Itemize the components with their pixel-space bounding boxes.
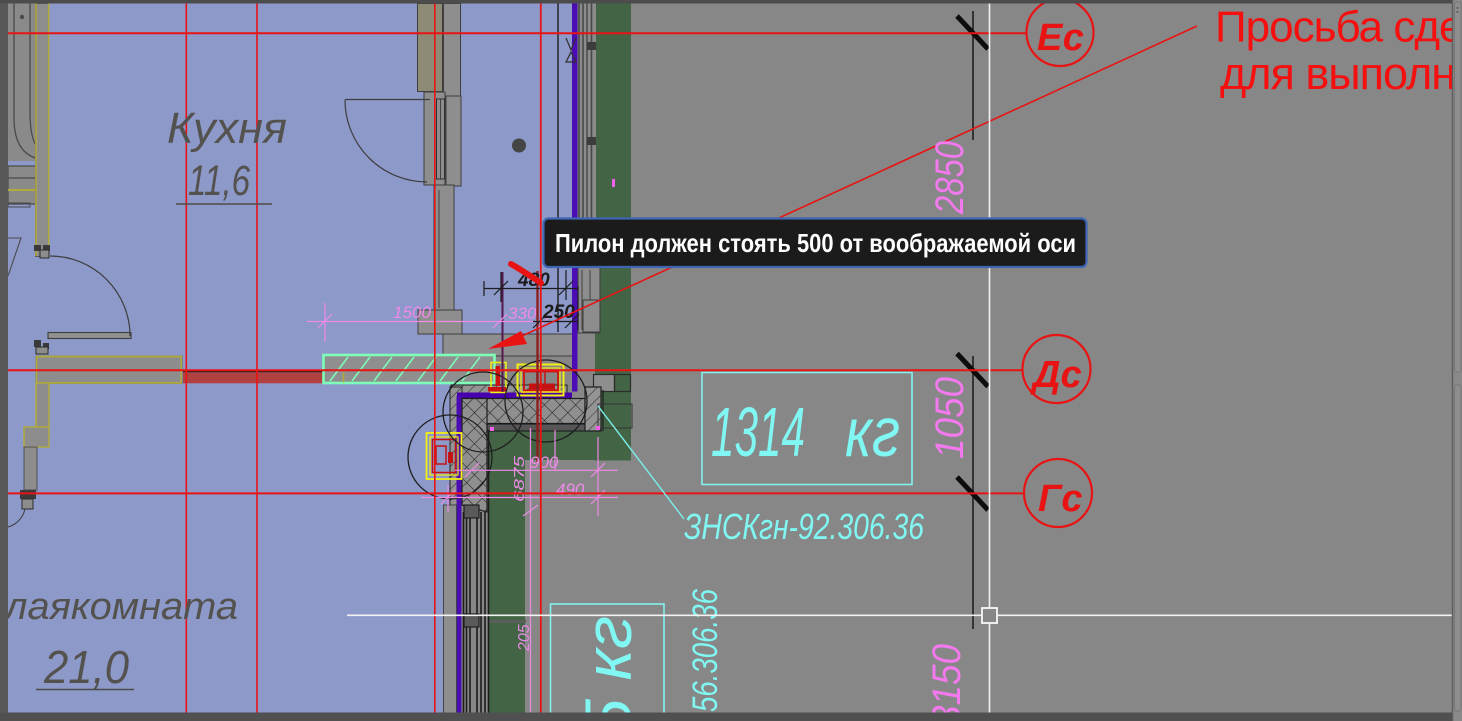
svg-text:1050: 1050 [928, 377, 972, 459]
svg-text:1500: 1500 [393, 303, 431, 322]
svg-text:21,0: 21,0 [43, 641, 129, 693]
svg-text:Просьба сделать: Просьба сделать [1215, 3, 1462, 52]
svg-text:490: 490 [556, 480, 585, 499]
svg-text:6875: 6875 [511, 455, 528, 502]
svg-text:1314: 1314 [711, 393, 805, 471]
svg-text:Кухня: Кухня [167, 104, 287, 153]
svg-text:Гс: Гс [1038, 478, 1082, 520]
svg-text:кг: кг [845, 393, 900, 471]
svg-text:лаякомната: лаякомната [3, 586, 238, 628]
svg-text:Пилон должен стоять 500 от воо: Пилон должен стоять 500 от воображаемой … [555, 228, 1076, 258]
svg-text:330: 330 [508, 304, 537, 323]
svg-text:Дс: Дс [1030, 354, 1082, 396]
svg-text:для выполнения: для выполнения [1220, 48, 1462, 99]
svg-text:900: 900 [530, 453, 559, 472]
svg-text:3150: 3150 [925, 644, 969, 721]
svg-text:11,6: 11,6 [188, 157, 250, 205]
svg-text:205: 205 [516, 624, 533, 652]
svg-text:2850: 2850 [928, 141, 972, 215]
svg-text:ЗНСКгн-92.306.36: ЗНСКгн-92.306.36 [684, 506, 925, 547]
svg-text:56.306.36: 56.306.36 [686, 589, 725, 712]
svg-text:Ес: Ес [1037, 17, 1084, 59]
svg-text:5 кг: 5 кг [571, 616, 645, 721]
